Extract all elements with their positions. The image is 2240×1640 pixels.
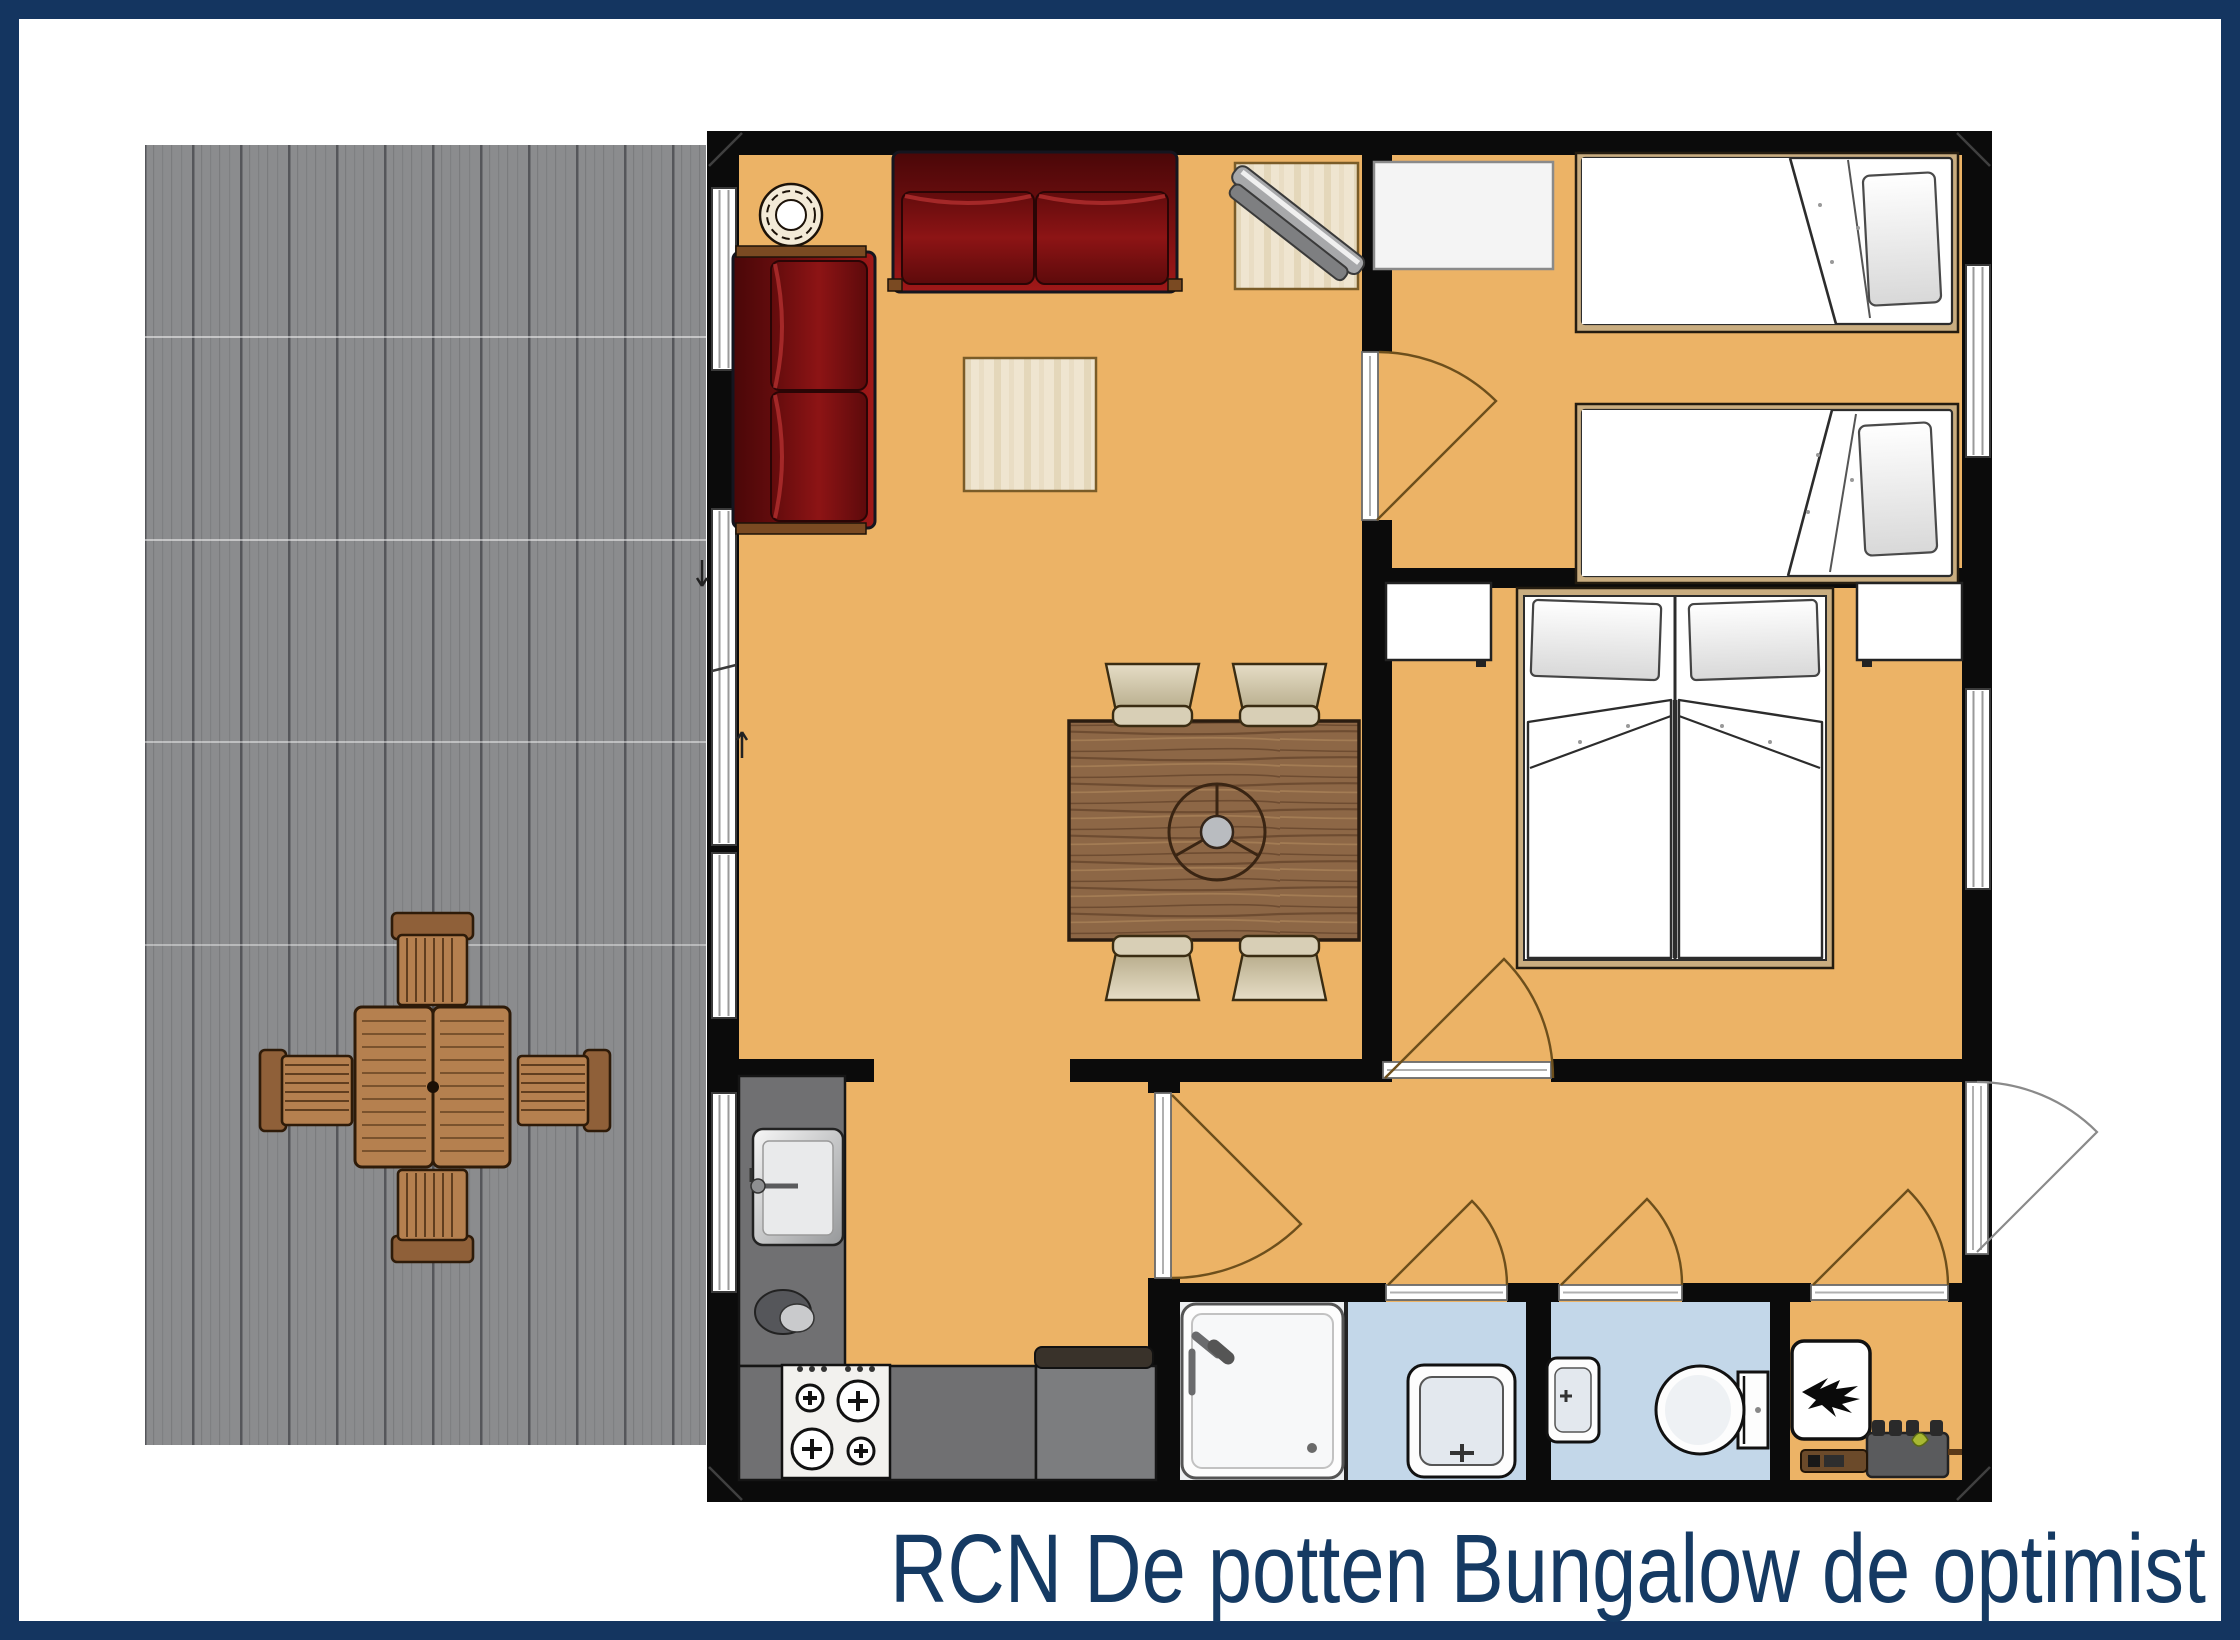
svg-text:RCN De potten Bungalow de opti: RCN De potten Bungalow de optimist [890, 1514, 2206, 1623]
